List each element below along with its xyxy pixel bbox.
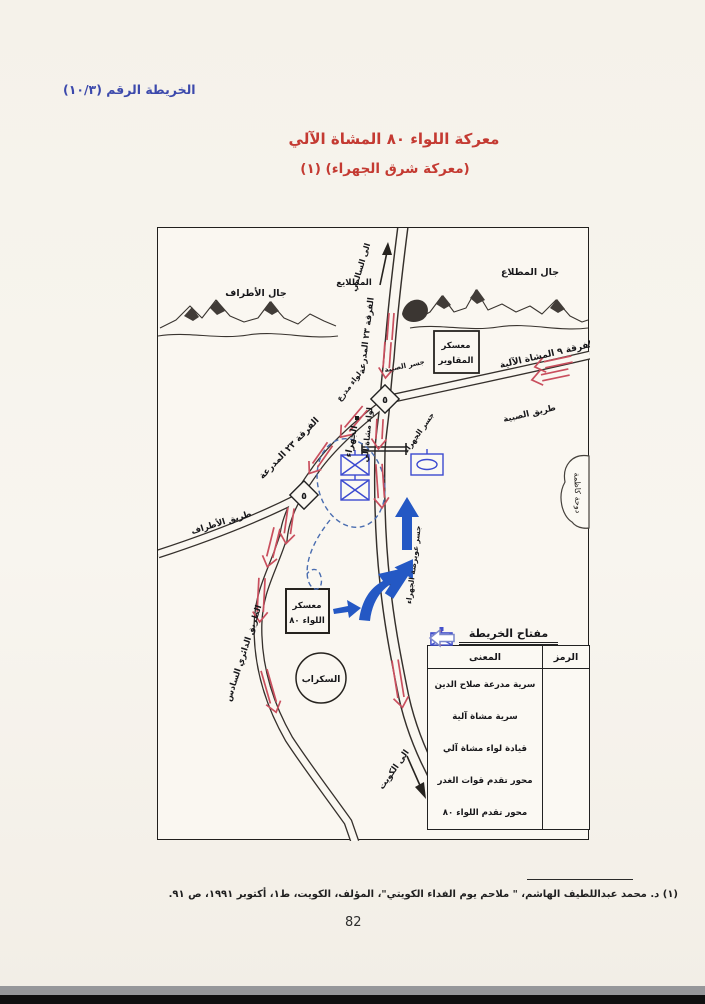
scrap-yard-label: السكراب [302, 675, 341, 685]
hill-hatch [550, 299, 565, 313]
scanned-page: الخريطة الرقم (١٠/٣) معركة اللواء ٨٠ الم… [0, 0, 705, 1004]
label-mech-brigade: لواء مشاة آلي [360, 407, 375, 463]
hill-hatch [436, 295, 451, 309]
scrap-yard-circle: السكراب [296, 653, 346, 703]
legend-meaning: قيادة لواء مشاة آلي [428, 733, 543, 765]
mech-infantry-company-symbol-icon [543, 701, 590, 733]
mech-infantry-company-unit-2 [341, 475, 369, 500]
footnote: (١) د. محمد عبداللطيف الهاشم، " ملاحم يو… [193, 889, 678, 900]
footnote-separator [527, 879, 633, 880]
map-reference-number: الخريطة الرقم (١٠/٣) [63, 82, 196, 97]
armored-company-symbol-icon [543, 669, 590, 702]
mech-brigade-hq-symbol-icon [543, 733, 590, 765]
page-title: معركة اللواء ٨٠ المشاة الآلي [240, 130, 548, 148]
junction-number: ٥ [301, 491, 307, 502]
legend-table: الرمز المعنى سرية مدرعة صلاح الدين سرية … [427, 645, 590, 830]
legend-row: سرية مدرعة صلاح الدين [428, 669, 590, 702]
blue-arrow-right [333, 600, 361, 618]
maqawir-camp-label-1: معسكر [441, 341, 471, 351]
legend-row: سرية مشاة آلية [428, 701, 590, 733]
map-legend: مفتاح الخريطة الرمز المعنى سرية مدرعة صل… [427, 627, 590, 830]
legend-meaning: محور تقدم قوات الغدر [428, 765, 543, 797]
enemy-advance-axis-icon [543, 765, 590, 797]
page-number: 82 [345, 915, 362, 930]
label-jal-atraf: جال الأطراف [225, 287, 286, 299]
brigade80-camp-box: معسكر اللواء ٨٠ [286, 589, 329, 633]
maqawir-camp-label-2: المقاوير [438, 356, 474, 366]
legend-meaning: محور تقدم اللواء ٨٠ [428, 797, 543, 830]
label-division23-north: الفرقة ٢٣ المدرعة [357, 297, 376, 375]
legend-row: محور تقدم قوات الغدر [428, 765, 590, 797]
label-kadhma-bay: دوحة كاظمة [572, 472, 582, 513]
label-jal-mutlaa: جال المطلاع [501, 267, 559, 278]
brigade80-camp-label-1: معسكر [292, 601, 322, 611]
mountain-range-east [402, 289, 588, 329]
armored-company-unit [411, 449, 443, 475]
junction-number: ٥ [382, 395, 388, 406]
legend-row: قيادة لواء مشاة آلي [428, 733, 590, 765]
scan-edge-black-band [0, 995, 705, 1004]
maqawir-camp-box: معسكر المقاوير [434, 331, 479, 373]
label-subiya-road: طريق الصبية [502, 403, 557, 425]
hill-hatch [264, 301, 279, 315]
legend-meaning: سرية مدرعة صلاح الدين [428, 669, 543, 702]
legend-col-symbol: الرمز [543, 646, 590, 669]
to-salmi-arrow [380, 242, 392, 285]
page-subtitle: (معركة شرق الجهراء) (١) [235, 161, 535, 177]
battle-map: ٥ ٥ معسكر المقاوير معسكر اللواء ٨٠ السكر… [157, 227, 589, 840]
mountain-range-west [158, 300, 338, 337]
legend-meaning: سرية مشاة آلية [428, 701, 543, 733]
scan-edge-gray-band [0, 986, 705, 995]
brigade80-advance-axis-icon [543, 797, 590, 830]
label-armored-brigade: لواء مدرع [335, 370, 364, 403]
label-jahra-bridge: جسر الجهراء [402, 411, 436, 455]
jahra-town-dot [355, 416, 359, 420]
label-to-kuwait: الى الكويت [377, 748, 412, 792]
dark-hill [402, 300, 428, 322]
legend-row: محور تقدم اللواء ٨٠ [428, 797, 590, 830]
brigade80-camp-label-2: اللواء ٨٠ [289, 616, 325, 626]
